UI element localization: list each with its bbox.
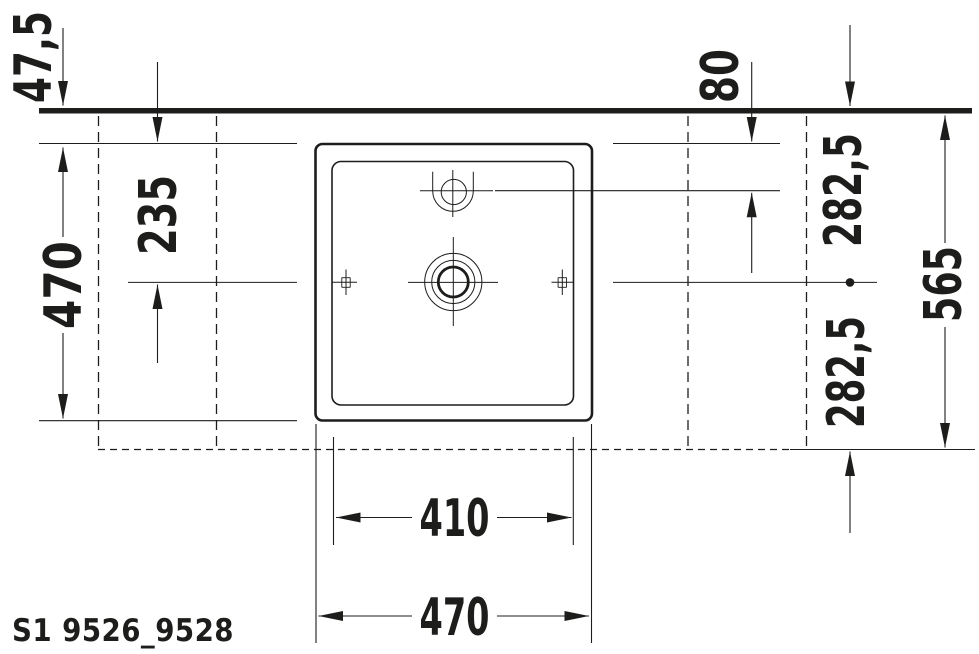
dim-chain-drain-center: 282,5 282,5 (814, 25, 877, 533)
fixing-cross-left (333, 270, 358, 296)
drain-axis-centerline (128, 278, 877, 287)
dim-label-half-depth: 235 (129, 175, 189, 255)
dim-label-drain-to-front: 282,5 (817, 316, 877, 428)
dim-basin-depth-left: 470 (34, 148, 94, 419)
dim-inner-width: 410 (336, 489, 572, 549)
dim-label-total-projection: 565 (914, 246, 974, 322)
wall-line (39, 108, 972, 114)
dim-label-outer-width: 470 (420, 588, 490, 648)
fixing-cross-right (552, 270, 574, 296)
dim-outer-width: 470 (319, 588, 590, 648)
dim-label-tap-offset: 80 (691, 49, 751, 103)
dim-drain-center-from-back: 235 (129, 62, 189, 363)
tap-hole (420, 170, 493, 217)
technical-drawing-basin-top-view: 47,5 470 235 80 282,5 282,5 565 410 (0, 0, 979, 654)
dim-wall-to-basin-back: 47,5 (4, 11, 64, 106)
dim-label-inner-width: 410 (420, 489, 490, 549)
drain-hole (408, 237, 498, 326)
dim-label-wall-to-drain: 282,5 (814, 133, 874, 247)
tap-hole-circle (441, 179, 466, 204)
dim-label-basin-depth: 470 (34, 241, 94, 329)
drawing-page: 47,5 470 235 80 282,5 282,5 565 410 (0, 0, 979, 654)
dimension-chain-dot (846, 278, 855, 287)
dim-label-wall-offset: 47,5 (4, 11, 64, 103)
dim-total-projection: 565 (914, 116, 974, 448)
product-code-label: S1 9526_9528 (12, 613, 234, 649)
dim-tap-hole-offset: 80 (691, 49, 752, 273)
